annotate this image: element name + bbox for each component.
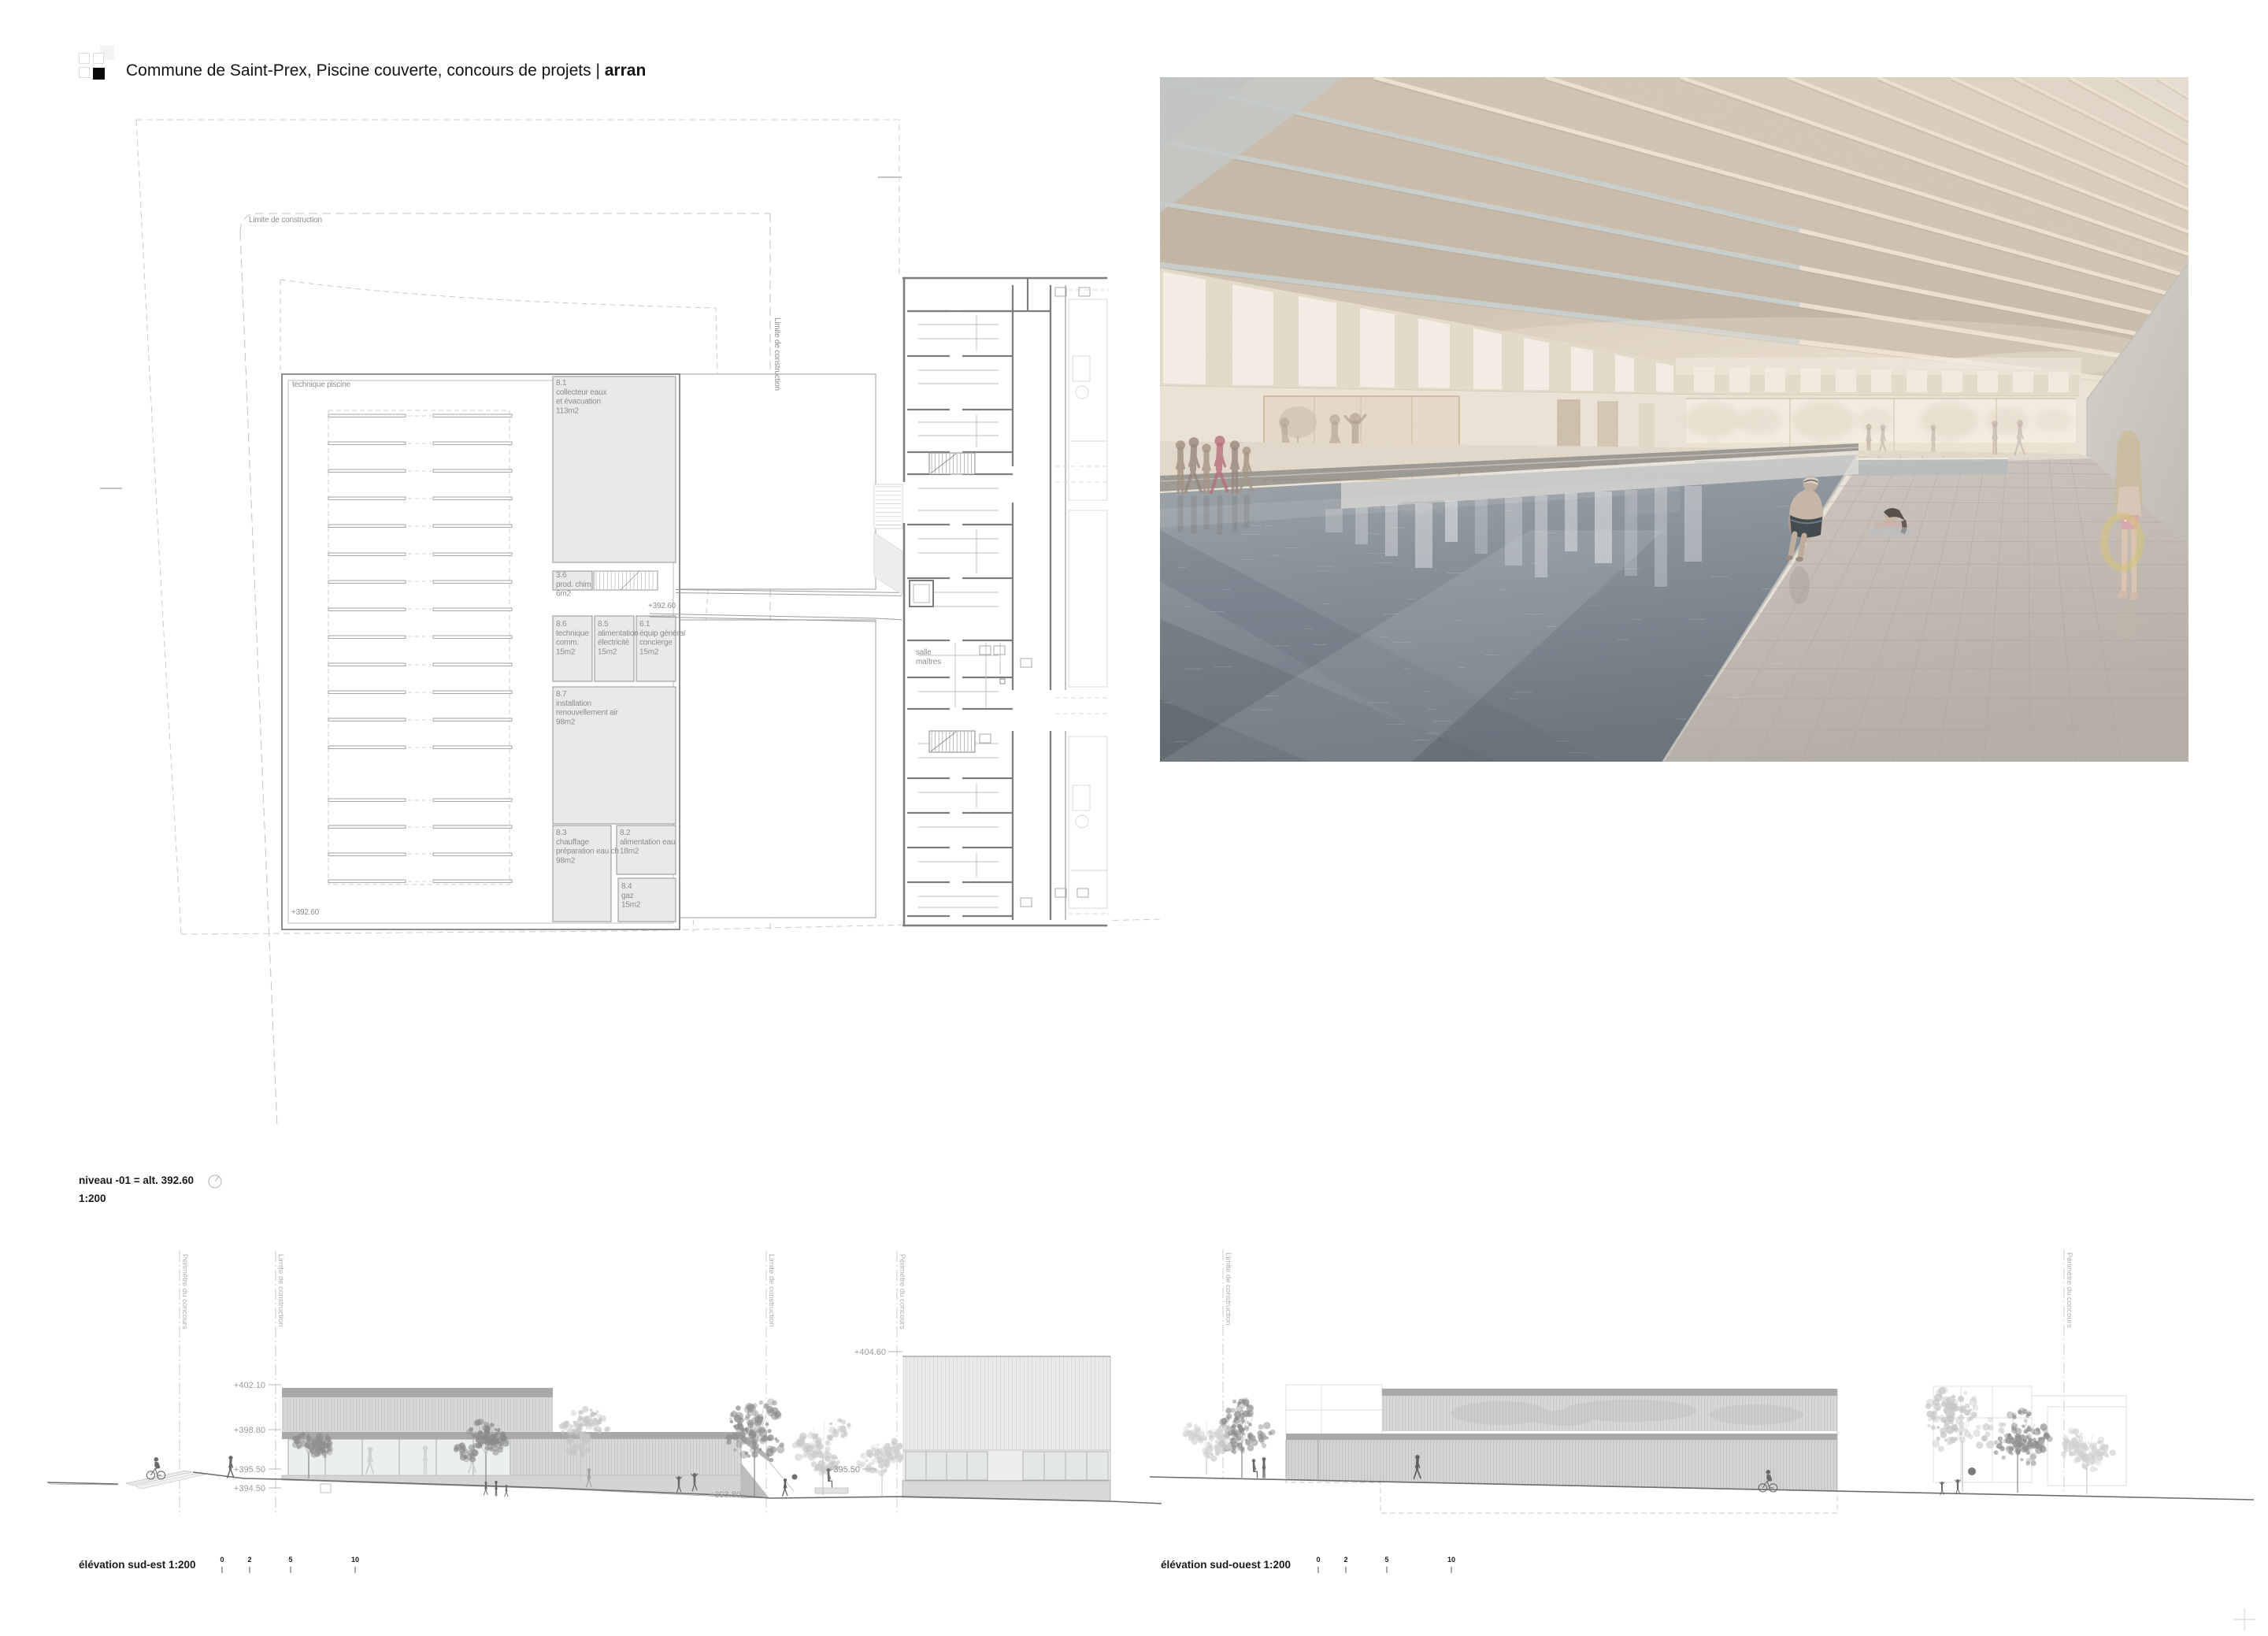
svg-text:15m2: 15m2 [621,901,641,910]
svg-text:alimentation eau: alimentation eau [620,838,675,847]
svg-text:10: 10 [351,1556,359,1564]
svg-text:gaz: gaz [621,892,634,900]
svg-text:6.1: 6.1 [639,620,650,629]
svg-text:8.7: 8.7 [556,690,567,699]
svg-text:98m2: 98m2 [556,718,576,726]
svg-text:technique: technique [556,629,589,638]
svg-text:+393.80: +393.80 [710,1490,741,1500]
svg-text:98m2: 98m2 [556,856,576,865]
svg-text:Périmètre du concours: Périmètre du concours [2065,1252,2073,1328]
svg-text:5: 5 [1384,1556,1388,1564]
svg-text:et évacuation: et évacuation [556,398,601,406]
svg-text:+392.60: +392.60 [291,908,320,917]
svg-text:8.6: 8.6 [556,620,567,629]
svg-text:0: 0 [1316,1556,1320,1564]
svg-text:3.6: 3.6 [556,571,567,580]
svg-text:élévation sud-ouest 1:200: élévation sud-ouest 1:200 [1161,1559,1291,1571]
svg-text:8.5: 8.5 [598,620,609,629]
svg-text:113m2: 113m2 [556,406,579,415]
svg-text:alimentation: alimentation [598,629,639,638]
svg-text:concierge: concierge [639,639,673,647]
svg-text:15m2: 15m2 [556,647,576,656]
svg-text:électricité: électricité [598,639,630,647]
svg-text:+395.50: +395.50 [828,1465,860,1475]
svg-text:8.4: 8.4 [621,882,632,891]
svg-text:prod. chim.: prod. chim. [556,581,593,589]
svg-text:10: 10 [1447,1556,1455,1564]
svg-text:8.3: 8.3 [556,829,567,837]
svg-text:+395.50: +395.50 [234,1465,265,1475]
svg-text:Limite de construction: Limite de construction [767,1254,776,1326]
svg-text:salle: salle [916,648,932,657]
svg-text:chauffage: chauffage [556,838,590,847]
svg-text:+394.50: +394.50 [234,1484,265,1493]
svg-text:équip général: équip général [639,629,685,638]
svg-text:1:200: 1:200 [79,1193,106,1204]
svg-text:maîtres: maîtres [916,658,941,666]
svg-text:15m2: 15m2 [598,647,617,656]
svg-text:renouvellement air: renouvellement air [556,709,619,718]
svg-text:élévation sud-est 1:200: élévation sud-est 1:200 [79,1559,196,1571]
svg-text:niveau -01 = alt. 392.60: niveau -01 = alt. 392.60 [79,1174,194,1186]
svg-text:+392.60: +392.60 [648,602,676,610]
svg-text:préparation eau ch: préparation eau ch [556,848,619,856]
svg-text:8.2: 8.2 [620,829,631,837]
svg-text:+398.80: +398.80 [234,1426,265,1435]
svg-text:technique piscine: technique piscine [292,380,351,389]
svg-text:2: 2 [247,1556,251,1564]
svg-text:2: 2 [1343,1556,1347,1564]
svg-text:Périmètre du concours: Périmètre du concours [180,1254,189,1330]
svg-text:+404.60: +404.60 [854,1348,886,1357]
svg-text:18m2: 18m2 [620,848,639,856]
svg-text:0: 0 [220,1556,224,1564]
svg-text:Limite de construction: Limite de construction [773,317,781,391]
svg-text:6m2: 6m2 [556,590,571,599]
svg-text:comm.: comm. [556,639,579,647]
svg-text:Commune de Saint-Prex, Piscine: Commune de Saint-Prex, Piscine couverte,… [126,61,646,80]
svg-text:Limite de construction: Limite de construction [249,216,322,224]
svg-text:Limite de construction: Limite de construction [1224,1252,1232,1325]
svg-text:Périmètre du concours: Périmètre du concours [898,1254,906,1330]
svg-text:collecteur eaux: collecteur eaux [556,388,606,397]
svg-text:5: 5 [288,1556,292,1564]
svg-text:+402.10: +402.10 [234,1381,265,1390]
svg-text:Limite de construction: Limite de construction [276,1254,285,1326]
svg-text:15m2: 15m2 [639,647,659,656]
svg-text:installation: installation [556,699,591,708]
svg-text:8.1: 8.1 [556,379,567,388]
